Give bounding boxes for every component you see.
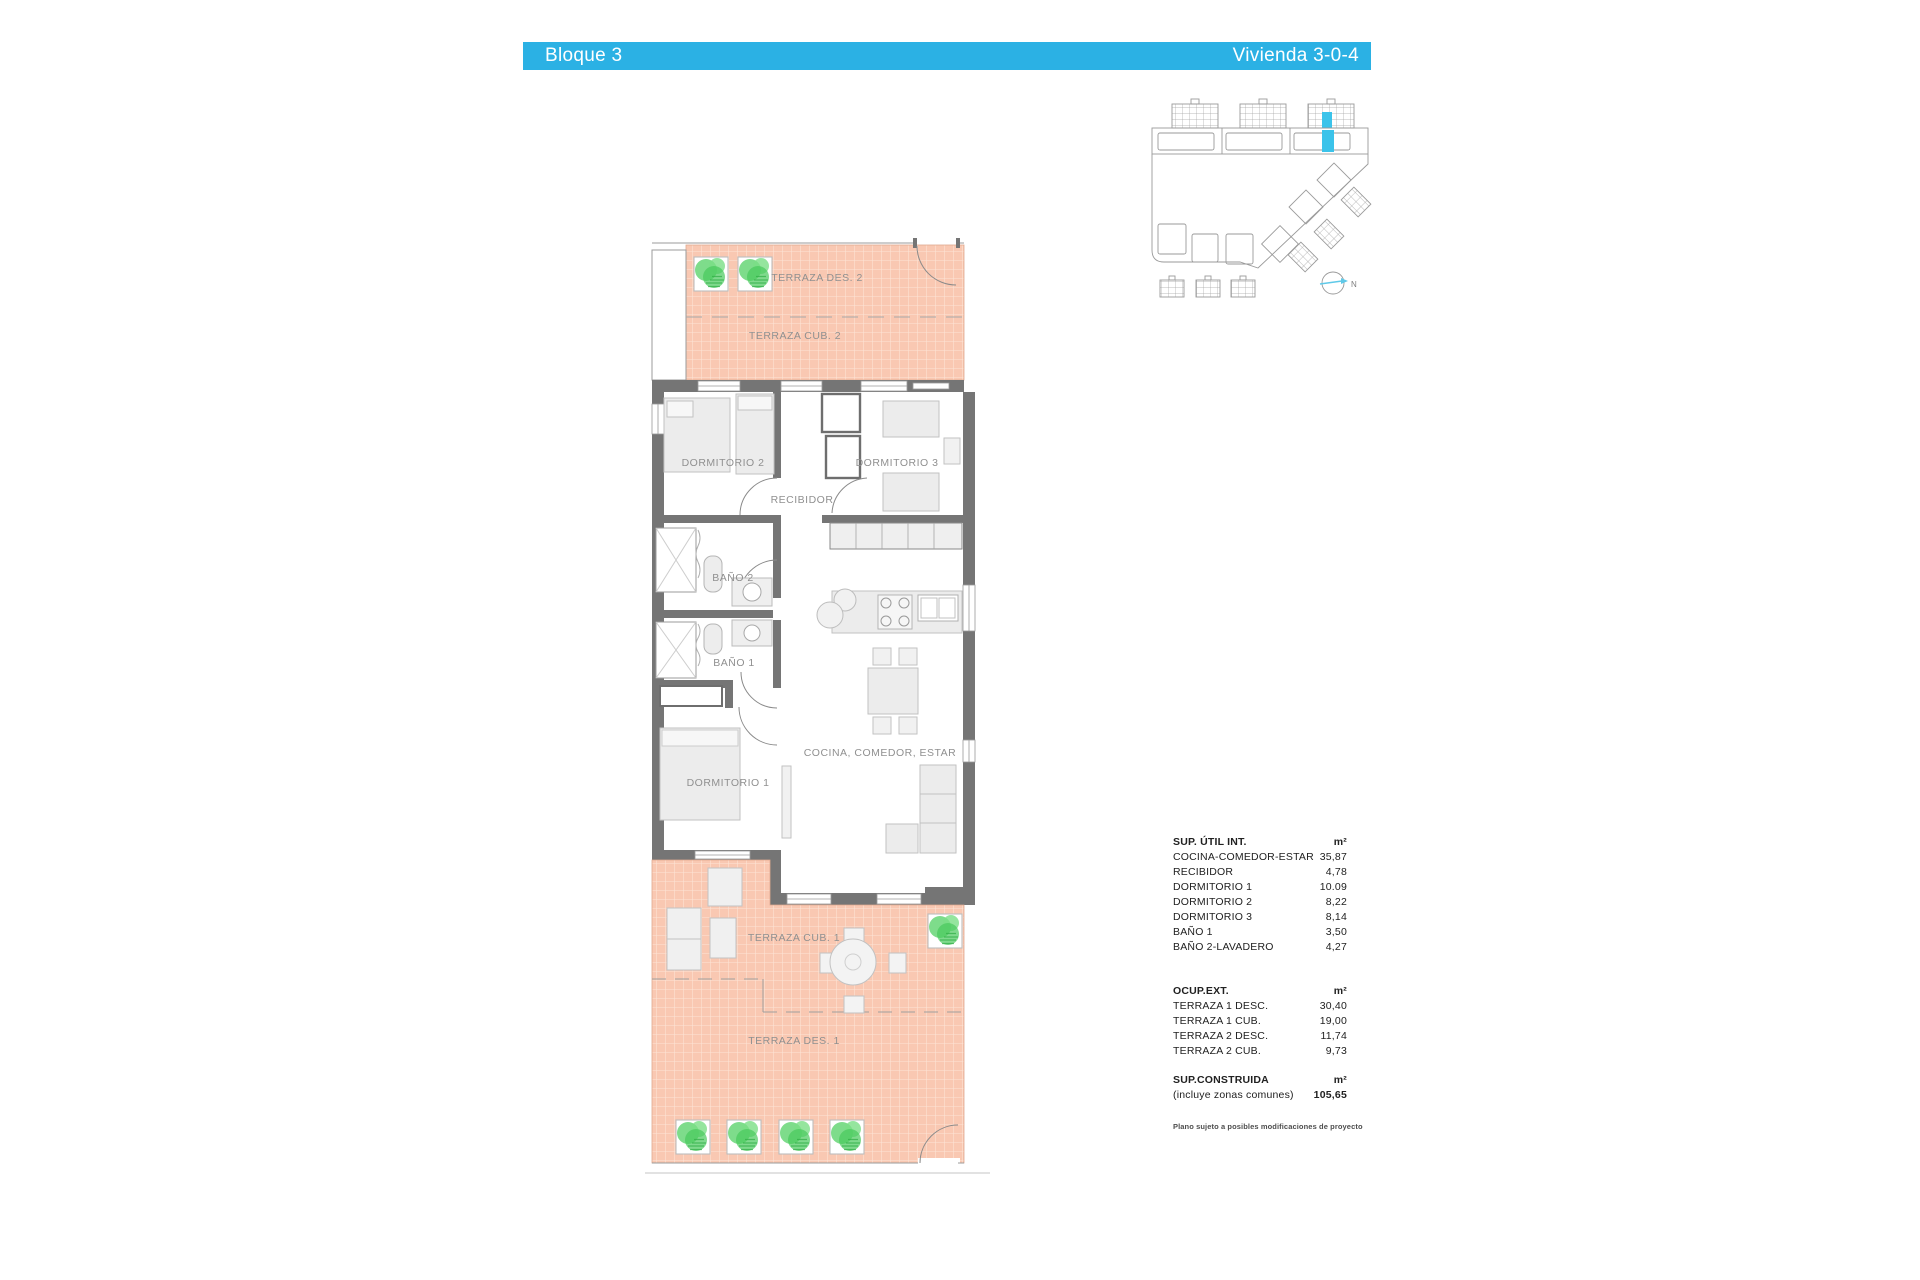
label-bano-2: BAÑO 2 — [712, 571, 754, 584]
row-value: 8,22 — [1326, 895, 1347, 910]
dining-set — [868, 648, 918, 734]
row-label: DORMITORIO 2 — [1173, 895, 1252, 910]
row-value: 8,14 — [1326, 910, 1347, 925]
label-dormitorio-1: DORMITORIO 1 — [687, 777, 770, 789]
north-label: N — [1351, 280, 1357, 289]
plan-drawing: N — [0, 0, 1920, 1280]
row-label: RECIBIDOR — [1173, 865, 1233, 880]
row-value: 11,74 — [1321, 1029, 1348, 1044]
terraza-1 — [645, 860, 990, 1173]
built-subtitle: (incluye zonas comunes) — [1173, 1088, 1294, 1103]
interior-unit: m² — [1334, 835, 1347, 850]
plant-icon — [928, 914, 962, 948]
label-bano-1: BAÑO 1 — [713, 656, 755, 669]
table-row: RECIBIDOR 4,78 — [1173, 865, 1347, 880]
row-label: COCINA-COMEDOR-ESTAR — [1173, 850, 1314, 865]
bano-1-fixtures — [656, 620, 772, 678]
exterior-title: OCUP.EXT. — [1173, 984, 1229, 999]
label-terraza-cub-1: TERRAZA CUB. 1 — [748, 932, 840, 944]
label-terraza-des-1: TERRAZA DES. 1 — [748, 1035, 840, 1047]
footnote: Plano sujeto a posibles modificaciones d… — [1173, 1119, 1347, 1134]
dormitorio-1-furniture — [660, 728, 740, 820]
row-label: TERRAZA 1 DESC. — [1173, 999, 1268, 1014]
site-plan: N — [1152, 99, 1371, 297]
plant-icon — [694, 257, 728, 291]
label-cocina: COCINA, COMEDOR, ESTAR — [804, 747, 957, 759]
built-title: SUP.CONSTRUIDA — [1173, 1073, 1269, 1088]
built-title-row: SUP.CONSTRUIDA m² — [1173, 1073, 1347, 1088]
label-terraza-cub-2: TERRAZA CUB. 2 — [749, 330, 841, 342]
plant-icon — [738, 257, 772, 291]
label-dormitorio-3: DORMITORIO 3 — [856, 457, 939, 469]
interior-title-row: SUP. ÚTIL INT. m² — [1173, 835, 1347, 850]
dormitorio-3-furniture — [883, 401, 960, 511]
label-dormitorio-2: DORMITORIO 2 — [682, 457, 765, 469]
plant-icon — [779, 1120, 813, 1154]
row-label: TERRAZA 1 CUB. — [1173, 1014, 1261, 1029]
built-unit: m² — [1334, 1073, 1347, 1088]
plant-icon — [830, 1120, 864, 1154]
site-highlight-unit — [1322, 130, 1334, 152]
row-label: BAÑO 2-LAVADERO — [1173, 940, 1274, 955]
sink-icon — [918, 595, 958, 621]
row-label: TERRAZA 2 CUB. — [1173, 1044, 1261, 1059]
built-value-row: (incluye zonas comunes) 105,65 — [1173, 1088, 1347, 1103]
row-value: 4,27 — [1326, 940, 1347, 955]
row-value: 4,78 — [1326, 865, 1347, 880]
terraza-2 — [652, 238, 964, 380]
areas-table: SUP. ÚTIL INT. m² COCINA-COMEDOR-ESTAR 3… — [1173, 835, 1347, 1134]
row-value: 30,40 — [1320, 999, 1347, 1014]
stove-icon — [878, 595, 912, 629]
row-value: 9,73 — [1326, 1044, 1347, 1059]
table-row: BAÑO 2-LAVADERO 4,27 — [1173, 940, 1347, 955]
kitchen-counter — [817, 589, 962, 633]
table-row: TERRAZA 1 DESC. 30,40 — [1173, 999, 1347, 1014]
table-row: TERRAZA 2 CUB. 9,73 — [1173, 1044, 1347, 1059]
shaft — [652, 250, 686, 380]
label-terraza-des-2: TERRAZA DES. 2 — [771, 272, 863, 284]
living-furniture — [782, 765, 956, 853]
table-row: BAÑO 1 3,50 — [1173, 925, 1347, 940]
label-recibidor: RECIBIDOR — [771, 494, 834, 506]
row-value: 19,00 — [1320, 1014, 1347, 1029]
table-row: DORMITORIO 2 8,22 — [1173, 895, 1347, 910]
row-value: 10.09 — [1320, 880, 1347, 895]
row-value: 35,87 — [1320, 850, 1347, 865]
north-arrow-icon — [1320, 272, 1348, 294]
row-label: DORMITORIO 1 — [1173, 880, 1252, 895]
table-row: DORMITORIO 3 8,14 — [1173, 910, 1347, 925]
plan-sheet: Bloque 3 Vivienda 3-0-4 — [0, 0, 1920, 1280]
interior-title: SUP. ÚTIL INT. — [1173, 835, 1247, 850]
row-label: TERRAZA 2 DESC. — [1173, 1029, 1268, 1044]
row-value: 3,50 — [1326, 925, 1347, 940]
exterior-title-row: OCUP.EXT. m² — [1173, 984, 1347, 999]
site-highlight-terrace — [1322, 112, 1332, 128]
row-label: BAÑO 1 — [1173, 925, 1213, 940]
built-value: 105,65 — [1314, 1088, 1347, 1103]
plant-icon — [727, 1120, 761, 1154]
table-row: COCINA-COMEDOR-ESTAR 35,87 — [1173, 850, 1347, 865]
exterior-unit: m² — [1334, 984, 1347, 999]
plant-icon — [676, 1120, 710, 1154]
table-row: TERRAZA 1 CUB. 19,00 — [1173, 1014, 1347, 1029]
table-row: DORMITORIO 1 10.09 — [1173, 880, 1347, 895]
table-row: TERRAZA 2 DESC. 11,74 — [1173, 1029, 1347, 1044]
row-label: DORMITORIO 3 — [1173, 910, 1252, 925]
